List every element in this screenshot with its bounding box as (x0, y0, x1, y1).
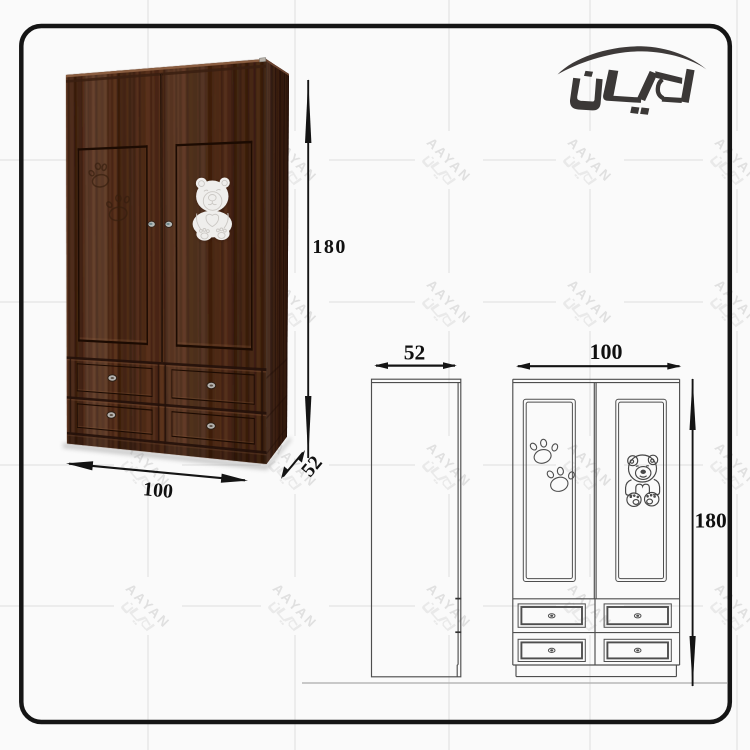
svg-text:100: 100 (590, 339, 623, 364)
svg-text:52: 52 (404, 341, 426, 365)
svg-text:100: 100 (142, 478, 174, 503)
svg-text:180: 180 (695, 509, 727, 533)
svg-text:180: 180 (312, 236, 347, 258)
